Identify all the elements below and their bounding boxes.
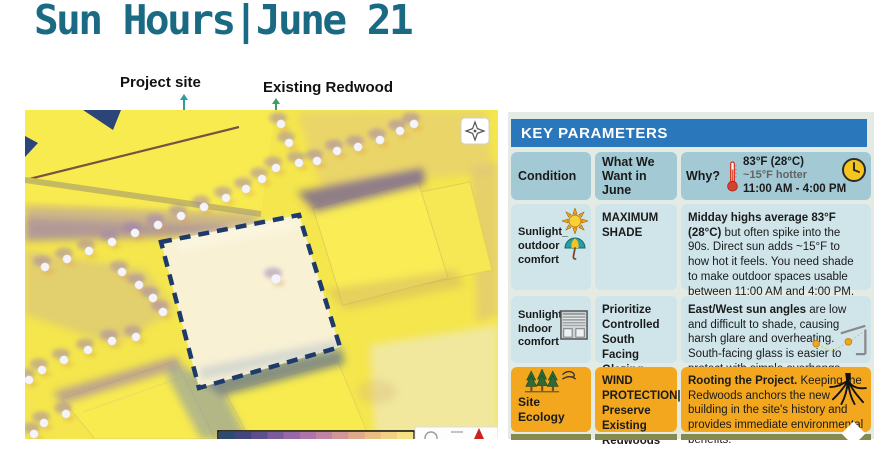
sun-hours-legend xyxy=(218,431,414,439)
time-range: 11:00 AM - 4:00 PM xyxy=(743,183,851,197)
wind-icon xyxy=(562,369,578,385)
row-sunlight-outdoor-want: MAXIMUM SHADE xyxy=(595,204,677,290)
page-title: Sun Hours|June 21 xyxy=(34,0,411,44)
clock-icon xyxy=(841,157,867,183)
redwood-trees-icon xyxy=(524,369,560,393)
window-blinds-icon xyxy=(560,310,588,340)
tree-roots-icon xyxy=(829,373,867,405)
row-sunlight-indoor-condition: Sunlight_ Indoor comfort xyxy=(511,296,591,363)
building-top-left xyxy=(25,110,275,214)
existing-redwood-label: Existing Redwood xyxy=(263,79,393,96)
project-site-label: Project site xyxy=(120,74,201,91)
next-row-strip xyxy=(511,434,591,440)
next-row-strip xyxy=(595,434,677,440)
key-parameters-panel: KEY PARAMETERS Condition What We Want in… xyxy=(508,112,874,439)
map-compass-button[interactable] xyxy=(461,118,489,144)
row-site-ecology-condition: Site Ecology xyxy=(511,367,591,432)
thermometer-icon xyxy=(726,158,739,194)
panel-header: KEY PARAMETERS xyxy=(511,119,867,147)
column-header-why: Why? 83°F (28°C) ~15°F hotter 11:00 AM -… xyxy=(681,152,871,200)
row-sunlight-indoor-why: East/West sun angles are low and difficu… xyxy=(681,296,871,363)
column-header-want: What We Want in June xyxy=(595,152,677,200)
row-sunlight-outdoor-condition: Sunlight_ outdoor comfort xyxy=(511,204,591,290)
row-site-ecology-why: Rooting the Project. Keeping the Redwood… xyxy=(681,367,871,432)
row-site-ecology-want: WIND PROTECTION| Preserve Existing Redwo… xyxy=(595,367,677,432)
panel-header-title: KEY PARAMETERS xyxy=(521,125,668,142)
arrow-up-icon xyxy=(272,98,280,104)
temperature-info: 83°F (28°C) ~15°F hotter 11:00 AM - 4:00… xyxy=(743,156,851,197)
temp-delta: ~15°F hotter xyxy=(743,169,851,182)
temp-value: 83°F (28°C) xyxy=(743,156,851,170)
column-header-condition: Condition xyxy=(511,152,591,200)
sun-icon xyxy=(562,208,588,234)
overhang-shading-diagram-icon xyxy=(806,322,868,356)
row-sunlight-outdoor-why: Midday highs average 83°F (28°C) but oft… xyxy=(681,204,871,290)
north-arrow-box xyxy=(415,427,498,439)
slide: { "slide": { "title": "Sun Hours|June 21… xyxy=(0,0,886,439)
umbrella-icon xyxy=(563,235,587,261)
row-sunlight-indoor-want: Prioritize Controlled South Facing Glazi… xyxy=(595,296,677,363)
sun-hours-map xyxy=(25,110,498,439)
arrow-up-icon xyxy=(180,94,188,100)
sun-hours-map-canvas xyxy=(25,110,498,439)
